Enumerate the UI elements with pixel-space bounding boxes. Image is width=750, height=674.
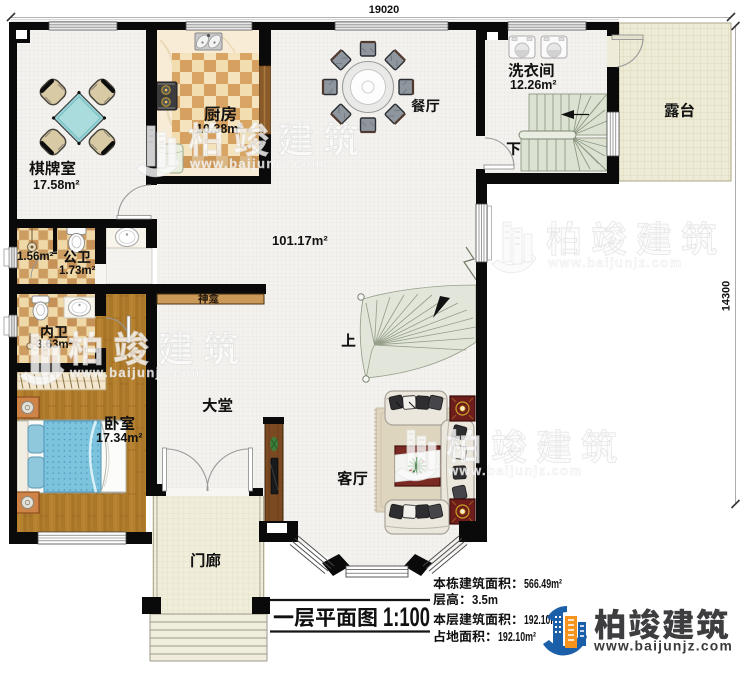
svg-text:12.26m²: 12.26m²	[510, 78, 557, 92]
svg-text:192.10m²: 192.10m²	[498, 629, 536, 644]
svg-text:www.baijunjz.com: www.baijunjz.com	[547, 255, 683, 270]
svg-text:17.58m²: 17.58m²	[33, 178, 80, 192]
svg-text:www.baijunjz.com: www.baijunjz.com	[189, 156, 325, 171]
svg-text:566.49m²: 566.49m²	[524, 576, 562, 591]
svg-text:101.17m²: 101.17m²	[272, 233, 328, 248]
svg-text:www.baijunjz.com: www.baijunjz.com	[593, 639, 733, 654]
svg-text:www.baijunjz.com: www.baijunjz.com	[447, 463, 583, 478]
svg-text:1.73m²: 1.73m²	[59, 265, 96, 277]
svg-text:3.5m: 3.5m	[472, 592, 498, 607]
svg-text:17.34m²: 17.34m²	[96, 431, 143, 445]
svg-text:1:100: 1:100	[383, 602, 430, 632]
svg-text:19020: 19020	[369, 4, 400, 16]
svg-text:www.baijunjz.com: www.baijunjz.com	[69, 365, 205, 380]
svg-text:14300: 14300	[721, 281, 733, 312]
svg-text:1.56m²: 1.56m²	[17, 251, 54, 263]
